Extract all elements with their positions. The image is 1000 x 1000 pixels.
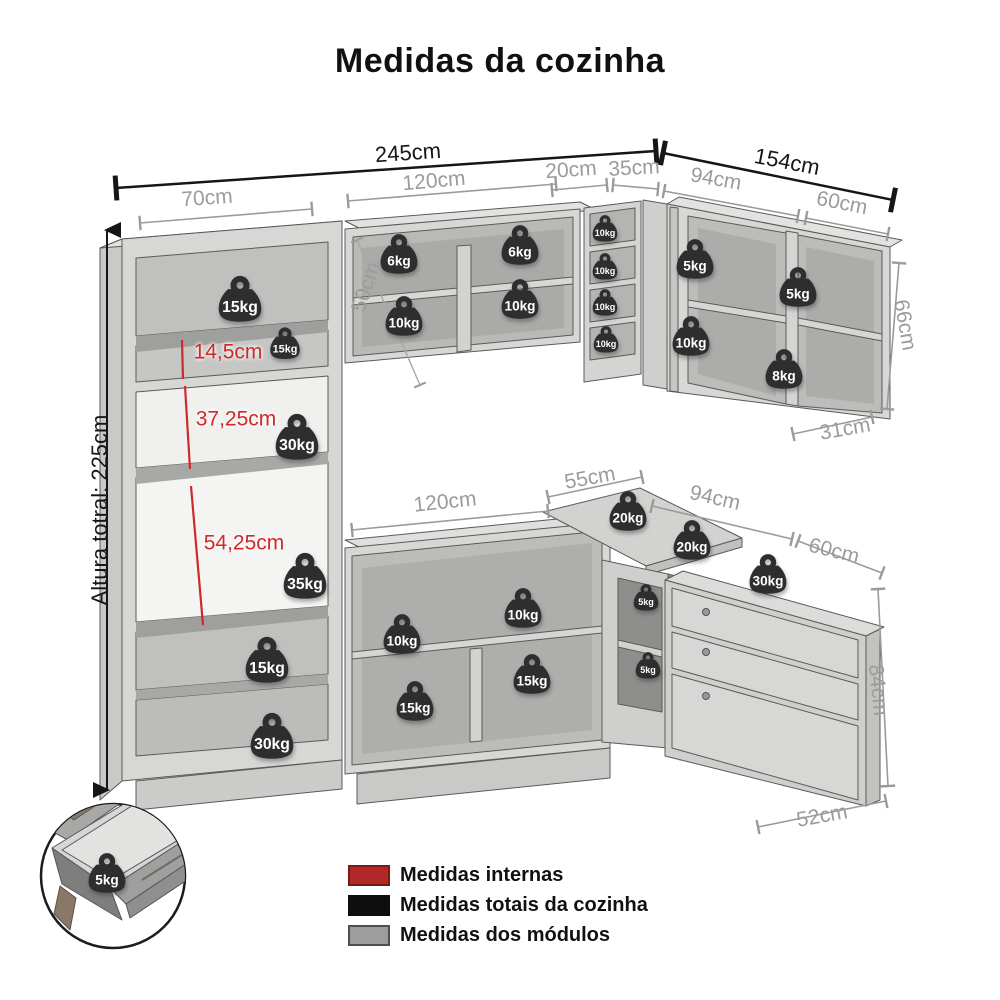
kitchen-line-art [0, 0, 1000, 1000]
legend: Medidas internas Medidas totais da cozin… [348, 864, 648, 946]
legend-label-internal: Medidas internas [400, 865, 563, 885]
drawer-base-cabinet [665, 571, 884, 806]
product-measurement-diagram: Medidas da cozinha [0, 0, 1000, 1000]
legend-swatch-internal [348, 865, 390, 886]
legend-label-total: Medidas totais da cozinha [400, 895, 648, 915]
page-title: Medidas da cozinha [0, 42, 1000, 81]
vertical-shelf-column [584, 201, 641, 382]
legend-label-modules: Medidas dos módulos [400, 925, 610, 945]
legend-row-modules: Medidas dos módulos [348, 924, 648, 946]
legend-swatch-modules [348, 925, 390, 946]
inset-drawer-detail [41, 786, 220, 948]
left-tall-cabinet [100, 221, 342, 810]
legend-swatch-total [348, 895, 390, 916]
legend-row-internal: Medidas internas [348, 864, 648, 886]
base-cabinets [345, 514, 626, 804]
upper-wall-cabinet [345, 202, 596, 385]
legend-row-total: Medidas totais da cozinha [348, 894, 648, 916]
